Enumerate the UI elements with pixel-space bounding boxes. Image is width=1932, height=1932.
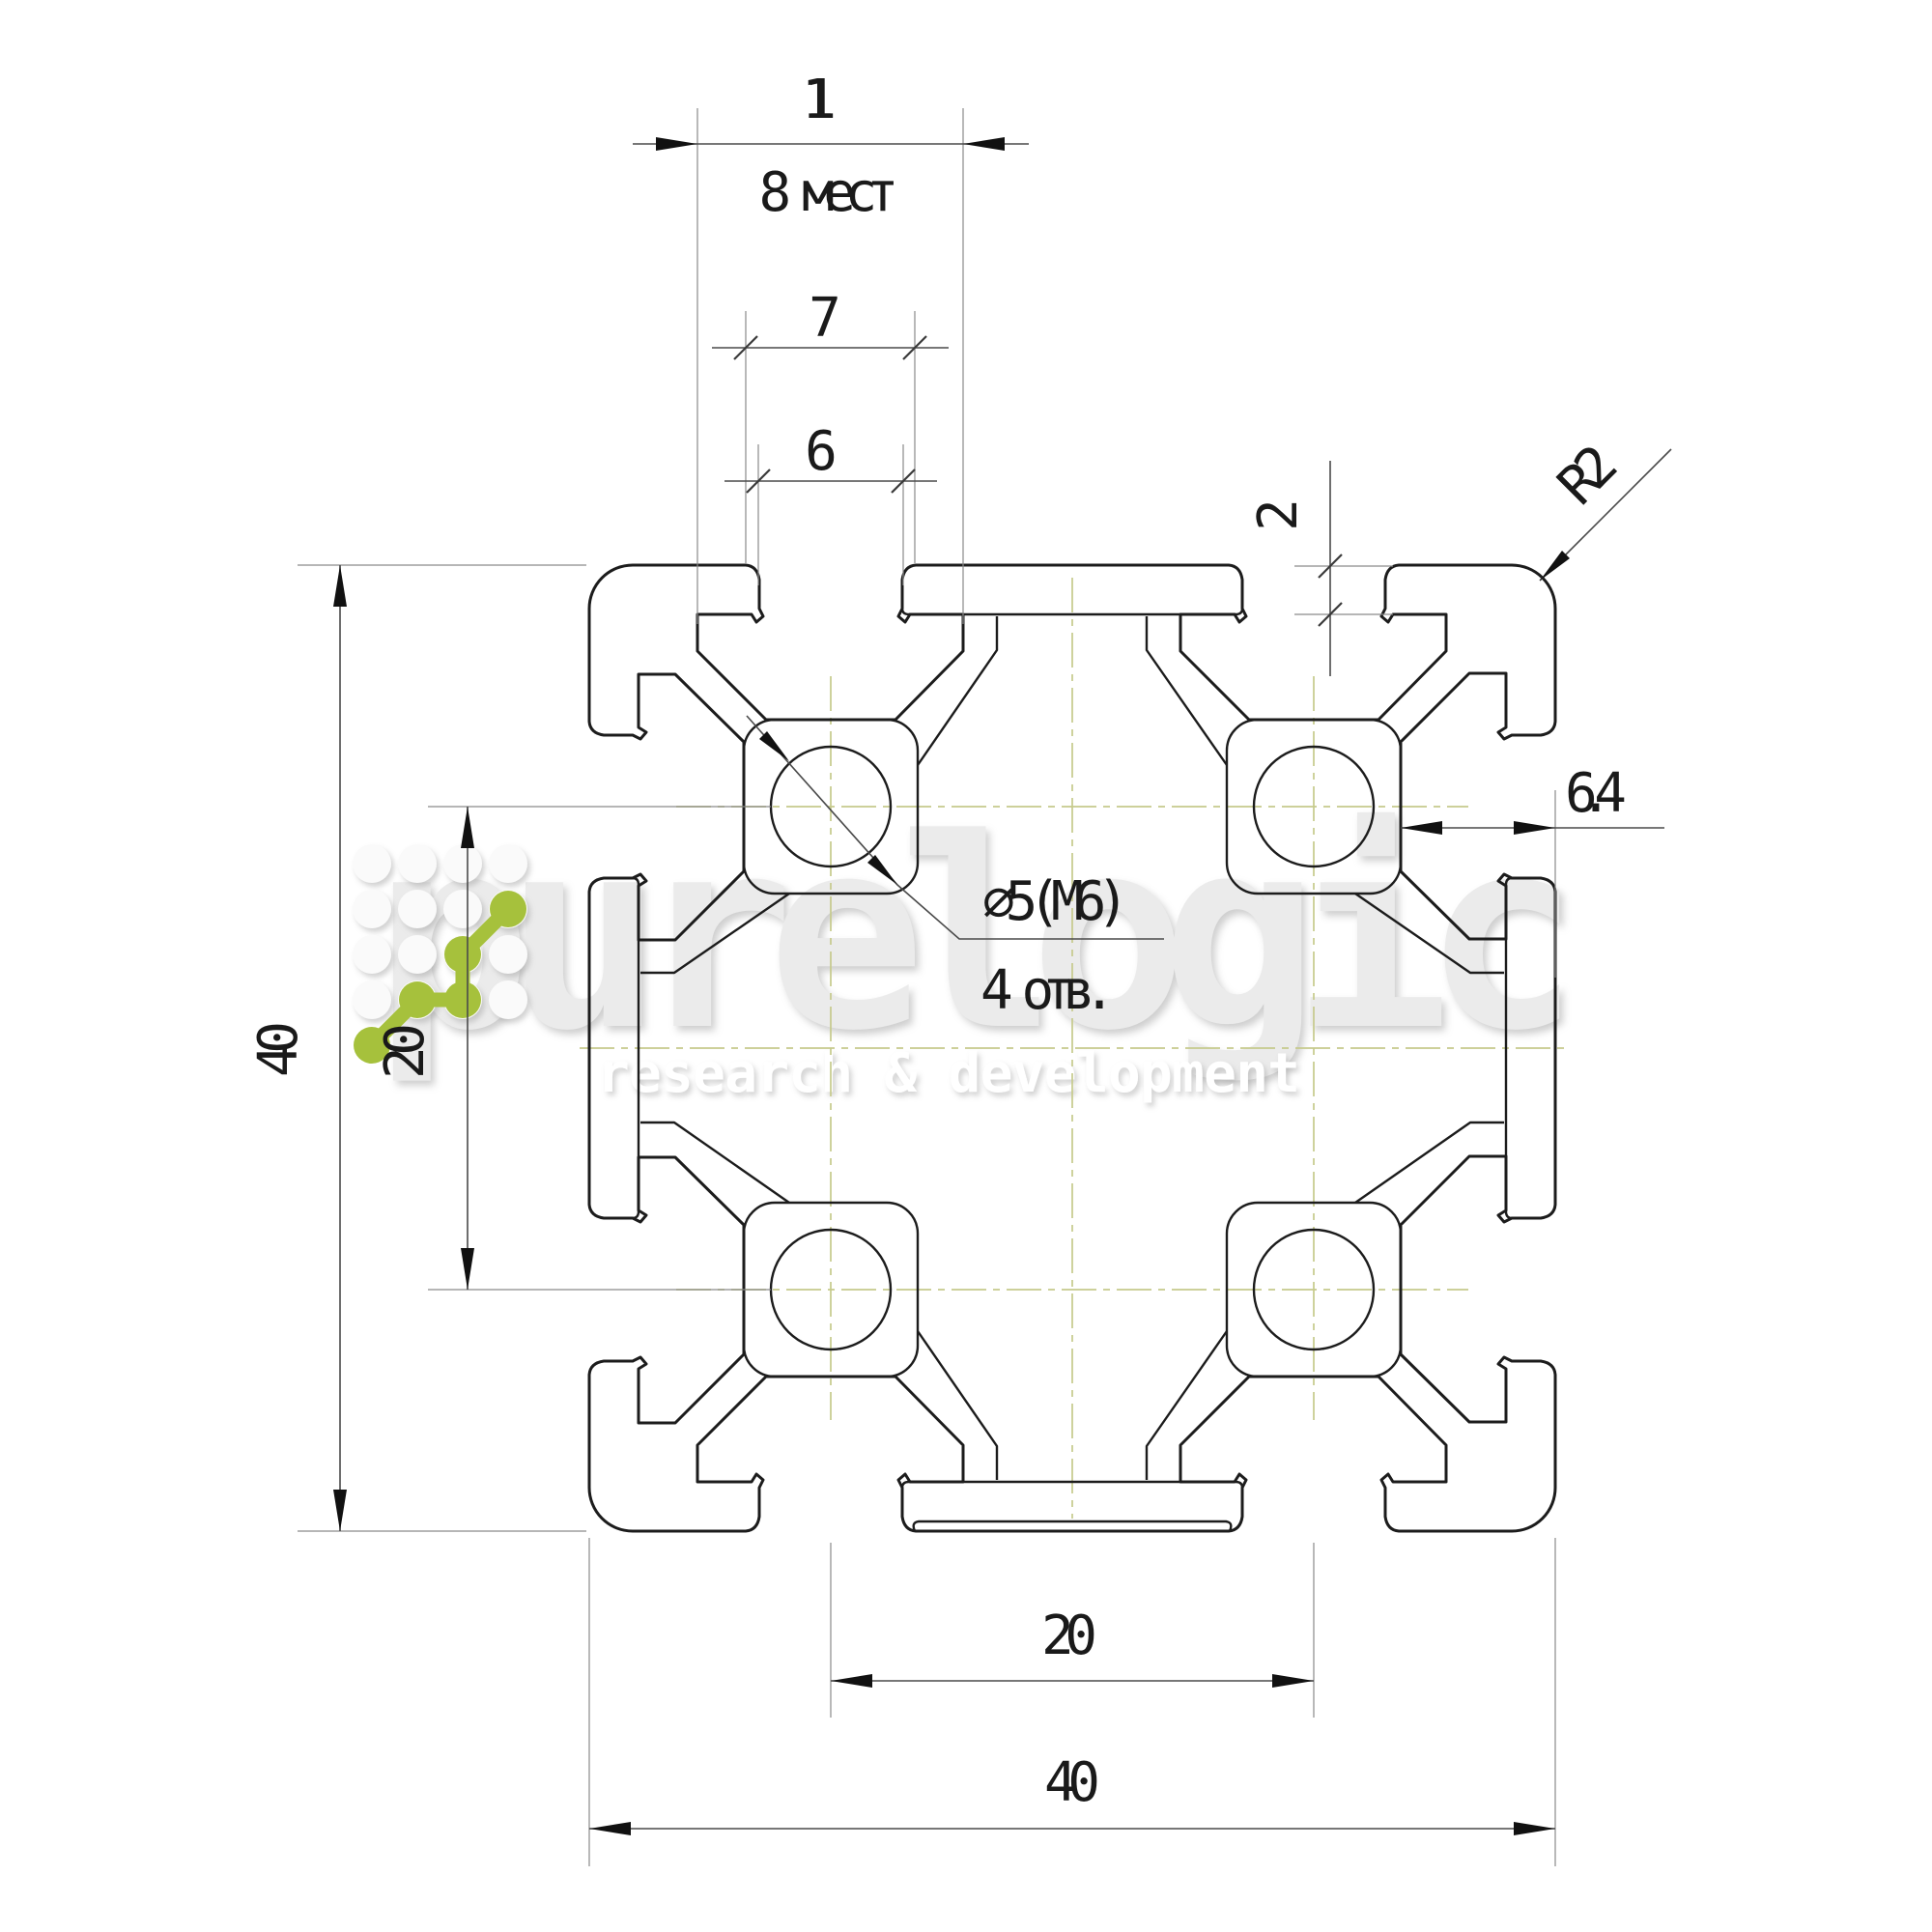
dim-11-label: 11 [802,69,837,131]
arrowhead-11-right [963,137,1005,151]
arrowhead-40w-left [589,1822,631,1835]
arrowhead-r2 [1540,551,1570,581]
arrowhead-40w-right [1514,1822,1555,1835]
dim-6-label: 6 [805,420,838,483]
dim-20v-label: 20 [374,1023,437,1079]
dim-hole-count-label: 4 отв. [980,959,1116,1022]
watermark: purelogic research & development [353,783,1581,1105]
channel-left-lower-wall [640,1122,789,1203]
dim-hole-diameter-label: ∅5(M6) [982,870,1129,933]
channel-top-right-wall [1147,616,1227,765]
dim-places-label: 8 мест [759,161,899,224]
arrowhead-20v-bottom [461,1248,474,1290]
dim-64-label: 6.4 [1565,762,1627,825]
arrowhead-20h-right [1272,1674,1314,1688]
channel-bottom-left-wall [918,1331,997,1480]
profile-technical-drawing: purelogic research & development [0,0,1932,1932]
arrowhead-40h-top [333,565,347,607]
arrowhead-20h-left [831,1674,872,1688]
arrowhead-11-left [656,137,697,151]
dim-20h-label: 20 [1041,1605,1097,1667]
channel-top-left-wall [918,616,997,765]
dim-7-label: 7 [809,287,841,350]
watermark-tagline-text: research & development [597,1042,1300,1105]
dim-40w-label: 40 [1044,1751,1100,1814]
dim-40h-label: 40 [247,1021,310,1077]
arrowhead-hole-upper [759,731,789,761]
drawing-canvas: purelogic research & development [0,0,1932,1932]
channel-bottom-right-wall [1147,1331,1227,1480]
channel-right-lower-wall [1355,1122,1504,1203]
dim-2-label: 2 [1247,498,1310,531]
dim-r2-label: R2 [1546,433,1630,517]
arrowhead-40h-bottom [333,1490,347,1531]
